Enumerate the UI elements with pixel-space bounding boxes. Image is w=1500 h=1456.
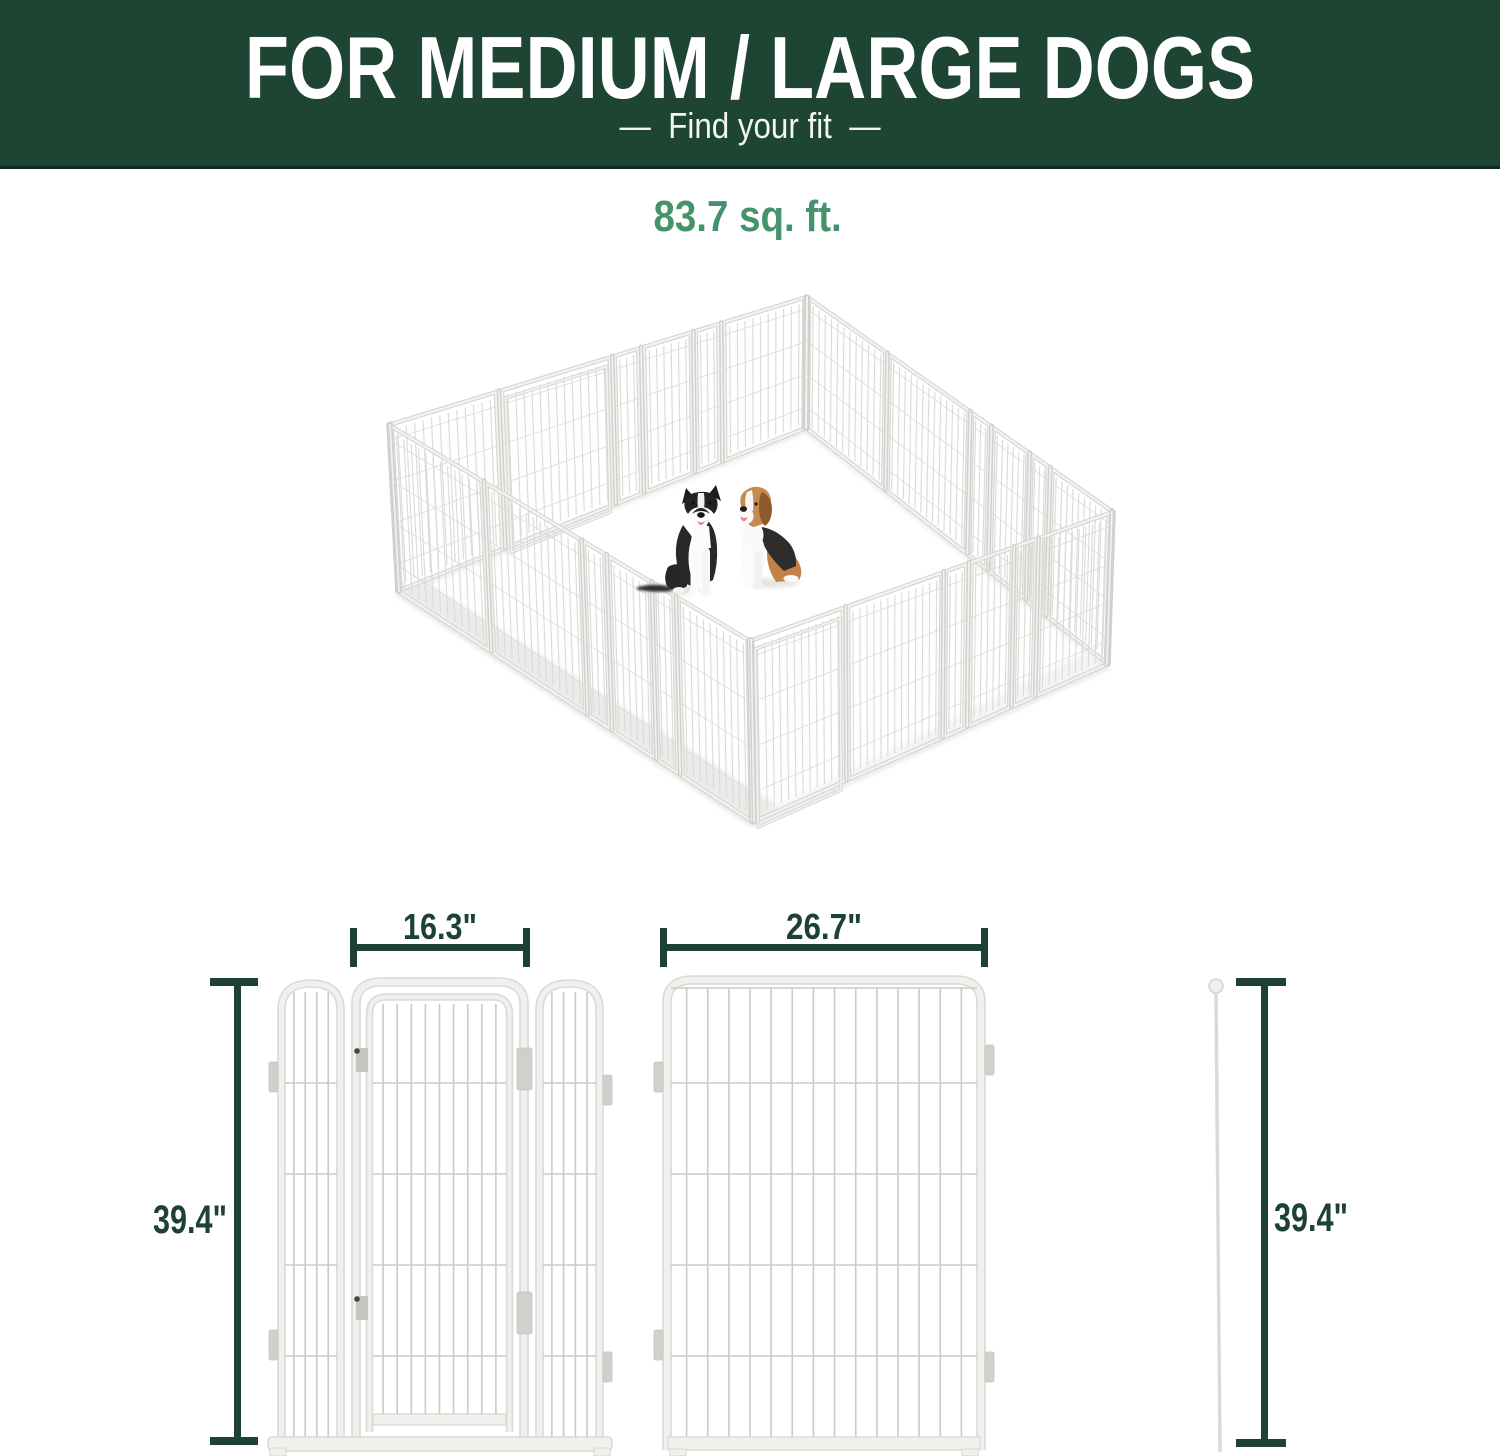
svg-text:39.4": 39.4" [153,1198,227,1242]
svg-text:26.7": 26.7" [786,906,862,947]
svg-text:39.4": 39.4" [1274,1196,1348,1240]
svg-text:16.3": 16.3" [403,906,477,947]
